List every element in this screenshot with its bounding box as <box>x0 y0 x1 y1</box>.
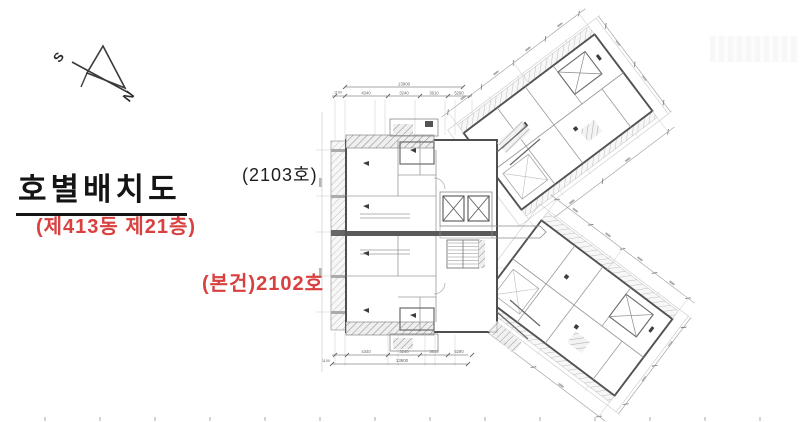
dim-label: 5290 <box>454 349 464 354</box>
dim-label: 13900 <box>398 82 411 87</box>
dim-label: 13900 <box>396 358 409 363</box>
dim-label: 1100 <box>334 91 342 95</box>
top-dimensions: 13900 1100 4340 3240 3610 5290 <box>332 82 472 99</box>
compass: S N <box>50 46 137 105</box>
floor-plan: 13900 1100 4340 3240 3610 5290 <box>316 1 703 422</box>
compass-south-label: S <box>50 49 67 65</box>
bottom-cropped-text-row <box>0 417 800 421</box>
screenshot-root: S N <box>0 0 800 422</box>
watermark <box>710 36 798 62</box>
staircase <box>447 240 485 268</box>
page-title: 호별배치도 <box>16 164 187 216</box>
compass-north-label: N <box>120 88 138 105</box>
dim-label: 4340 <box>361 91 371 96</box>
dim-label: 3240 <box>399 349 409 354</box>
unit-label-2102-subject: (본건)2102호 <box>202 267 324 296</box>
unit-label-2103: (2103호) <box>242 161 318 187</box>
dim-label: 1100 <box>322 359 330 363</box>
page-subtitle: (제413동 제21층) <box>36 210 196 239</box>
dim-label: 5290 <box>454 91 464 96</box>
dim-label: 3610 <box>429 91 439 96</box>
dim-label: 4340 <box>361 349 371 354</box>
dim-label: 3240 <box>399 91 409 96</box>
